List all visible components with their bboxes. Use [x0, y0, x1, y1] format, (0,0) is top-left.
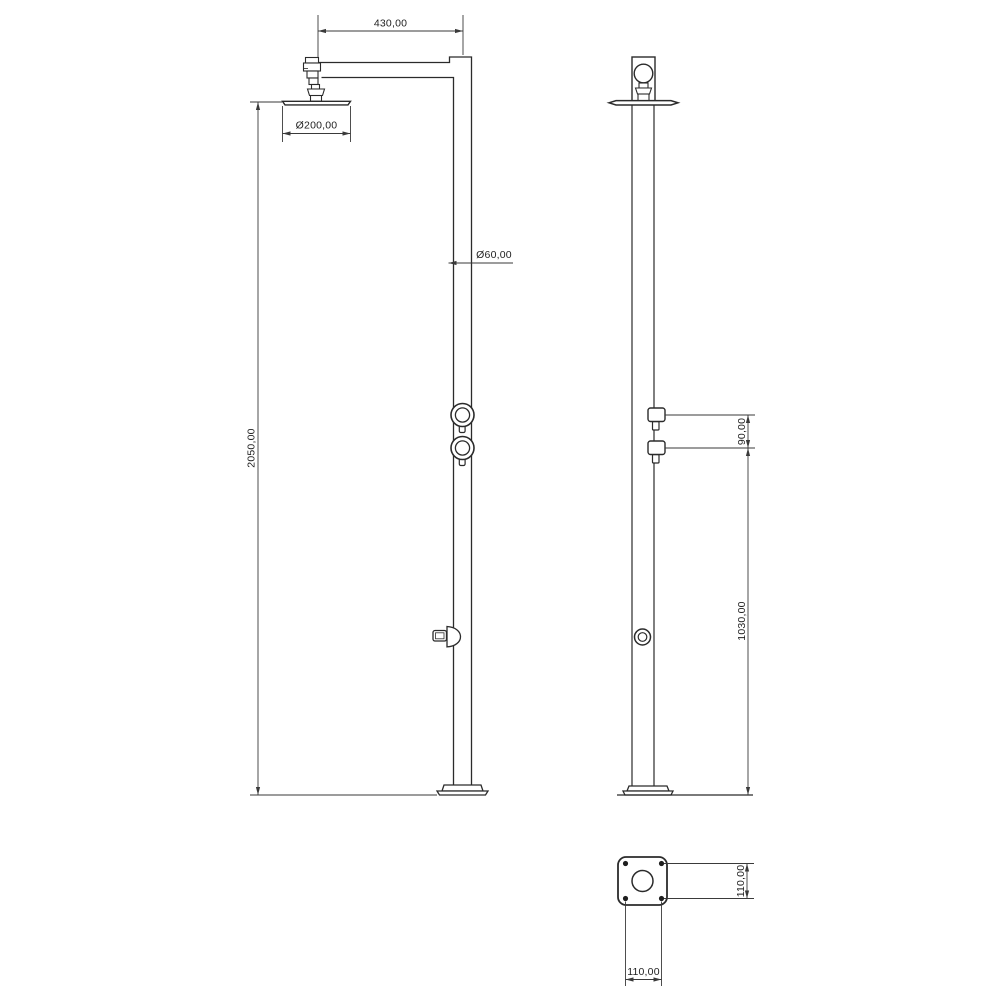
dim-label-total-height: 2050,00 [246, 428, 258, 467]
valve-knob-bottom [451, 437, 474, 466]
side-view: 90,00 1030,00 [609, 57, 755, 795]
dim-label-base-width: 110,00 [627, 966, 660, 978]
head-joint-housing [304, 58, 325, 102]
valve-handle-top-side [648, 408, 665, 430]
bolt-hole-top-right [659, 861, 664, 866]
shower-head-front [283, 101, 351, 105]
dim-total-height: 2050,00 [246, 102, 283, 795]
shower-arm-outline [306, 57, 472, 785]
dim-base-depth: 110,00 [664, 864, 754, 899]
front-view: 430,00 Ø200,00 Ø60,00 2050,00 [246, 15, 514, 795]
dim-base-width: 110,00 [626, 902, 662, 987]
dim-label-handle-spacing: 90,00 [736, 418, 748, 445]
dim-arm-length: 430,00 [318, 15, 463, 57]
shower-head-side [609, 101, 678, 105]
base-flange-front [437, 785, 488, 795]
dim-label-arm-length: 430,00 [374, 18, 407, 30]
bolt-hole-top-left [623, 861, 628, 866]
shower-pole-inner-edge [322, 78, 454, 786]
dim-head-diameter: Ø200,00 [283, 106, 351, 142]
technical-drawing-canvas: 430,00 Ø200,00 Ø60,00 2050,00 [0, 0, 1000, 1000]
dim-tap-height: 1030,00 [736, 448, 750, 795]
foot-tap-front [433, 627, 461, 647]
dim-label-pole-diameter: Ø60,00 [476, 249, 512, 261]
base-plan-view: 110,00 110,00 [618, 857, 754, 986]
dim-label-head-diameter: Ø200,00 [296, 120, 338, 132]
bolt-hole-bottom-right [659, 896, 664, 901]
dim-label-tap-height: 1030,00 [736, 601, 748, 640]
technical-drawing-page: 430,00 Ø200,00 Ø60,00 2050,00 [0, 0, 1000, 1000]
dim-pole-diameter: Ø60,00 [449, 249, 514, 265]
base-flange-side [623, 786, 673, 795]
valve-knob-top [451, 404, 474, 433]
dim-label-base-depth: 110,00 [735, 865, 747, 898]
foot-tap-side [635, 629, 651, 645]
dim-handle-spacing: 90,00 [665, 415, 755, 448]
bolt-hole-bottom-left [623, 896, 628, 901]
valve-handle-bottom-side [648, 441, 665, 463]
